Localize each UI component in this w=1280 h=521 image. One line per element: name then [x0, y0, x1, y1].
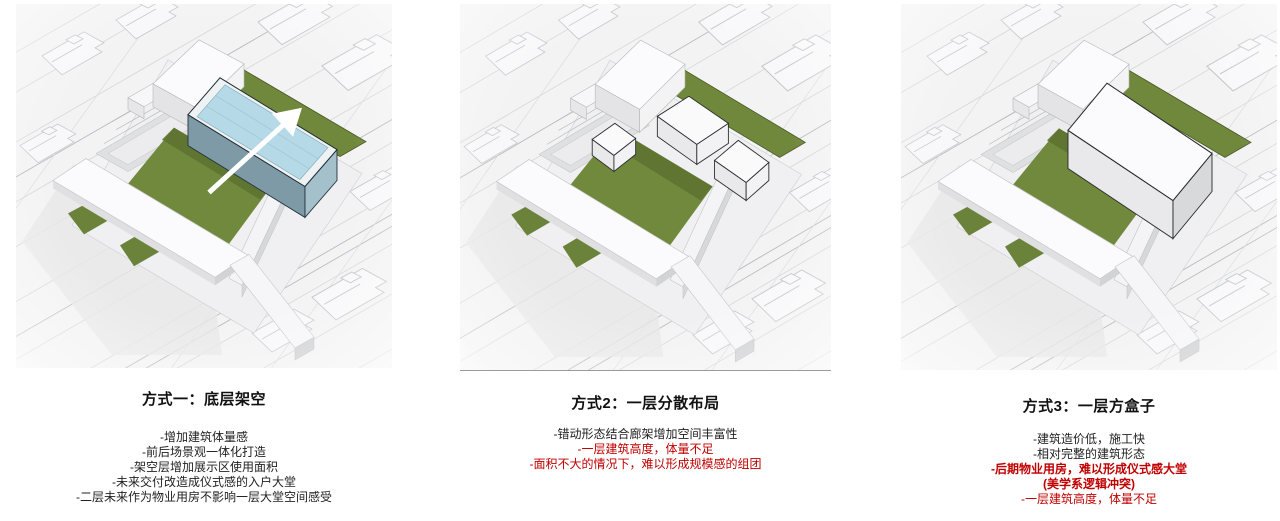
- note-line: -架空层增加展示区使用面积: [16, 460, 392, 475]
- note-line: -建筑造价低，施工快: [901, 432, 1277, 447]
- option-notes-1: -增加建筑体量感-前后场景观一体化打造-架空层增加展示区使用面积-未来交付改造成…: [16, 430, 392, 505]
- option-panel-1: 方式一：底层架空 -增加建筑体量感-前后场景观一体化打造-架空层增加展示区使用面…: [16, 0, 392, 521]
- note-line: -增加建筑体量感: [16, 430, 392, 445]
- massing-diagram-option-3: [901, 4, 1277, 370]
- option-notes-3: -建筑造价低，施工快-相对完整的建筑形态-后期物业用房，难以形成仪式感大堂(美学…: [901, 432, 1277, 507]
- note-line: -错动形态结合廊架增加空间丰富性: [460, 427, 831, 442]
- note-line: -一层建筑高度，体量不足: [901, 492, 1277, 507]
- note-line: -后期物业用房，难以形成仪式感大堂: [901, 462, 1277, 477]
- massing-diagram-option-2: [460, 4, 831, 371]
- note-line: -一层建筑高度，体量不足: [460, 442, 831, 457]
- note-line: -面积不大的情况下，难以形成规模感的组团: [460, 457, 831, 472]
- option-title-2: 方式2：一层分散布局: [460, 396, 831, 412]
- note-line: (美学系逻辑冲突): [901, 477, 1277, 492]
- note-line: -二层未来作为物业用房不影响一层大堂空间感受: [16, 490, 392, 505]
- option-title-3: 方式3：一层方盒子: [901, 399, 1277, 415]
- option-panel-3: 方式3：一层方盒子 -建筑造价低，施工快-相对完整的建筑形态-后期物业用房，难以…: [901, 0, 1277, 521]
- option-title-1: 方式一：底层架空: [16, 392, 392, 408]
- option-caption-2: 方式2：一层分散布局 -错动形态结合廊架增加空间丰富性-一层建筑高度，体量不足-…: [460, 396, 831, 472]
- option-notes-2: -错动形态结合廊架增加空间丰富性-一层建筑高度，体量不足-面积不大的情况下，难以…: [460, 427, 831, 472]
- option-caption-1: 方式一：底层架空 -增加建筑体量感-前后场景观一体化打造-架空层增加展示区使用面…: [16, 392, 392, 505]
- massing-diagram-option-1: [16, 4, 392, 368]
- option-caption-3: 方式3：一层方盒子 -建筑造价低，施工快-相对完整的建筑形态-后期物业用房，难以…: [901, 399, 1277, 507]
- note-line: -未来交付改造成仪式感的入户大堂: [16, 475, 392, 490]
- note-line: -前后场景观一体化打造: [16, 445, 392, 460]
- slide: 方式一：底层架空 -增加建筑体量感-前后场景观一体化打造-架空层增加展示区使用面…: [0, 0, 1280, 521]
- note-line: -相对完整的建筑形态: [901, 447, 1277, 462]
- option-panel-2: 方式2：一层分散布局 -错动形态结合廊架增加空间丰富性-一层建筑高度，体量不足-…: [460, 0, 831, 521]
